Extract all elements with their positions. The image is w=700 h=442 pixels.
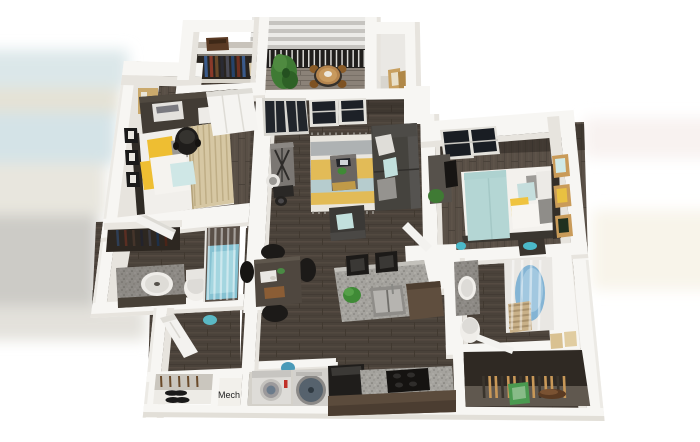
svg-text:Mech: Mech [218, 390, 240, 400]
